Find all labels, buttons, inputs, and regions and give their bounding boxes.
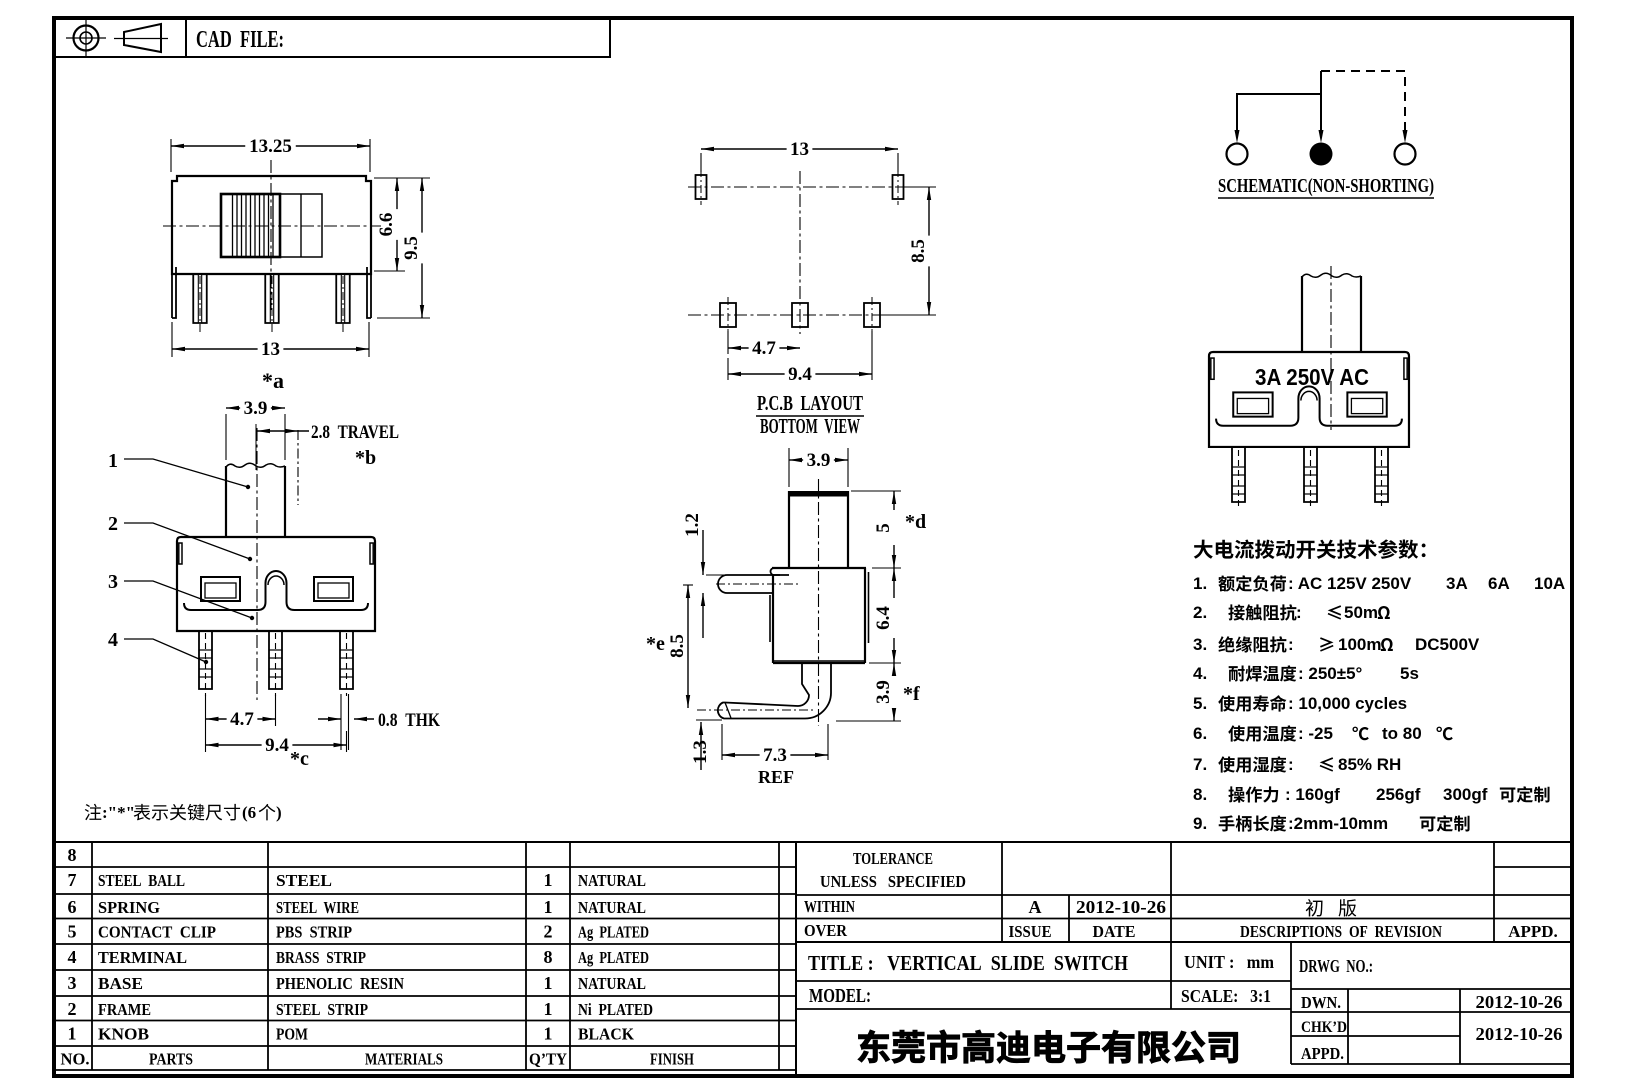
svg-text:1.3: 1.3: [690, 740, 711, 764]
svg-text:NATURAL: NATURAL: [578, 871, 646, 890]
svg-text:OVER: OVER: [804, 921, 848, 940]
svg-text:NATURAL: NATURAL: [578, 898, 646, 917]
svg-text:PHENOLIC RESIN: PHENOLIC RESIN: [276, 974, 405, 993]
svg-text:CONTACT CLIP: CONTACT CLIP: [98, 923, 216, 942]
svg-text:BOTTOM VIEW: BOTTOM VIEW: [760, 414, 860, 438]
svg-text:8.: 8.: [1193, 785, 1207, 804]
svg-text:2: 2: [544, 922, 553, 942]
svg-text:): ): [276, 803, 282, 822]
svg-text:to 80: to 80: [1382, 724, 1422, 743]
svg-text:1: 1: [108, 450, 118, 472]
svg-text:4.7: 4.7: [230, 709, 254, 730]
svg-text:CHK’D: CHK’D: [1301, 1019, 1347, 1036]
svg-text:: AC 125V 250V: : AC 125V 250V: [1288, 574, 1412, 593]
svg-text:STEEL: STEEL: [276, 871, 332, 890]
svg-text:MATERIALS: MATERIALS: [365, 1050, 443, 1069]
svg-text:*e: *e: [646, 633, 665, 655]
svg-text:9.4: 9.4: [265, 735, 289, 756]
svg-text:*a: *a: [262, 368, 284, 393]
svg-text:*b: *b: [355, 447, 376, 469]
svg-text:APPD.: APPD.: [1301, 1044, 1344, 1063]
svg-text:*c: *c: [290, 748, 309, 770]
svg-text::"*": :"*": [102, 803, 135, 822]
svg-text:100m: 100m: [1338, 635, 1381, 654]
svg-text:3: 3: [108, 571, 118, 593]
svg-text:FRAME: FRAME: [98, 1000, 151, 1019]
svg-text:PBS STRIP: PBS STRIP: [276, 923, 352, 942]
svg-text:NO.: NO.: [61, 1050, 90, 1069]
svg-text:13: 13: [790, 139, 809, 160]
svg-text:4.: 4.: [1193, 664, 1207, 683]
svg-text:2: 2: [68, 999, 77, 1019]
svg-text:256gf: 256gf: [1376, 785, 1421, 804]
svg-text:KNOB: KNOB: [98, 1025, 149, 1044]
svg-text:3.9: 3.9: [807, 450, 831, 471]
svg-text:Ni PLATED: Ni PLATED: [578, 1000, 653, 1019]
svg-text:13: 13: [261, 339, 280, 360]
svg-text:1: 1: [68, 1024, 77, 1044]
svg-text:SPRING: SPRING: [98, 898, 160, 917]
svg-text:3.9: 3.9: [873, 680, 894, 704]
svg-text:85% RH: 85% RH: [1338, 755, 1401, 774]
svg-text:2012-10-26: 2012-10-26: [1476, 992, 1563, 1012]
svg-text:9.: 9.: [1193, 814, 1207, 833]
svg-text:7: 7: [68, 870, 77, 890]
svg-text:STEEL STRIP: STEEL STRIP: [276, 1000, 368, 1019]
svg-text:MODEL:: MODEL:: [809, 985, 871, 1007]
svg-text:2012-10-26: 2012-10-26: [1076, 897, 1166, 917]
svg-text:1.2: 1.2: [682, 513, 703, 537]
svg-text:5: 5: [68, 922, 77, 942]
svg-text:5s: 5s: [1400, 664, 1419, 683]
svg-text:3A 250V AC: 3A 250V AC: [1255, 364, 1369, 390]
svg-text:Ag PLATED: Ag PLATED: [578, 923, 649, 942]
svg-text:6: 6: [68, 897, 77, 917]
svg-text:6.6: 6.6: [376, 213, 397, 237]
svg-text:APPD.: APPD.: [1508, 922, 1558, 941]
svg-text:: -25: : -25: [1298, 724, 1333, 743]
svg-text::: :: [1288, 635, 1294, 654]
svg-text:: 160gf: : 160gf: [1285, 785, 1340, 804]
svg-text:2.: 2.: [1193, 603, 1207, 622]
svg-text:REF: REF: [758, 767, 794, 787]
svg-text:9.4: 9.4: [788, 364, 812, 385]
svg-text:Q’TY: Q’TY: [529, 1050, 567, 1069]
svg-text:6.: 6.: [1193, 724, 1207, 743]
svg-text:SCALE: 3:1: SCALE: 3:1: [1181, 986, 1271, 1006]
svg-text:DATE: DATE: [1093, 922, 1136, 941]
svg-text:5.: 5.: [1193, 694, 1207, 713]
svg-text:8.5: 8.5: [908, 239, 929, 263]
svg-text::2mm-10mm: :2mm-10mm: [1288, 814, 1388, 833]
svg-text:7.: 7.: [1193, 755, 1207, 774]
svg-text:UNIT : mm: UNIT : mm: [1184, 952, 1274, 972]
svg-text:1: 1: [544, 999, 553, 1019]
svg-text:8: 8: [544, 947, 553, 967]
svg-text:300gf: 300gf: [1443, 785, 1488, 804]
svg-text:: 250±5°: : 250±5°: [1298, 664, 1363, 683]
svg-text:2012-10-26: 2012-10-26: [1476, 1024, 1563, 1044]
svg-text:ISSUE: ISSUE: [1009, 922, 1052, 941]
svg-text:9.5: 9.5: [401, 236, 422, 260]
svg-text:TOLERANCE: TOLERANCE: [853, 849, 933, 868]
svg-text:1.: 1.: [1193, 574, 1207, 593]
svg-text:3A: 3A: [1446, 574, 1468, 593]
svg-text:3.9: 3.9: [244, 398, 268, 419]
svg-text:POM: POM: [276, 1025, 308, 1044]
svg-text:5: 5: [873, 523, 894, 533]
svg-text:A: A: [1029, 897, 1042, 917]
svg-text:Ag PLATED: Ag PLATED: [578, 948, 649, 967]
svg-text:P.C.B LAYOUT: P.C.B LAYOUT: [757, 391, 863, 415]
svg-text:DRWG NO.:: DRWG NO.:: [1299, 956, 1373, 976]
svg-text:SCHEMATIC(NON-SHORTING): SCHEMATIC(NON-SHORTING): [1218, 175, 1434, 197]
svg-text:3.: 3.: [1193, 635, 1207, 654]
svg-text:*f: *f: [903, 683, 920, 705]
svg-text:STEEL BALL: STEEL BALL: [98, 871, 185, 890]
svg-text::: :: [1296, 603, 1302, 622]
svg-text:2.8 TRAVEL: 2.8 TRAVEL: [311, 422, 399, 443]
svg-text:*d: *d: [905, 511, 926, 533]
svg-text:DESCRIPTIONS OF REVISION: DESCRIPTIONS OF REVISION: [1240, 922, 1443, 941]
svg-text:FINISH: FINISH: [650, 1050, 694, 1069]
svg-text:8: 8: [68, 845, 77, 865]
svg-text:CAD FILE:: CAD FILE:: [196, 27, 284, 53]
svg-text:10A: 10A: [1534, 574, 1565, 593]
svg-text:1: 1: [544, 973, 553, 993]
svg-text:1: 1: [544, 870, 553, 890]
svg-text:: 10,000 cycles: : 10,000 cycles: [1288, 694, 1407, 713]
svg-text:BRASS STRIP: BRASS STRIP: [276, 948, 366, 967]
svg-text:1: 1: [544, 1024, 553, 1044]
svg-text:TERMINAL: TERMINAL: [98, 948, 187, 967]
svg-text:DC500V: DC500V: [1415, 635, 1480, 654]
svg-text:TITLE : VERTICAL SLIDE SWI: TITLE : VERTICAL SLIDE SWITCH: [808, 951, 1128, 975]
svg-text:PARTS: PARTS: [149, 1050, 193, 1069]
svg-text:6.4: 6.4: [873, 606, 894, 630]
svg-text:BLACK: BLACK: [578, 1025, 635, 1044]
svg-text:3: 3: [68, 973, 77, 993]
svg-text:4: 4: [108, 629, 118, 651]
svg-text:8.5: 8.5: [667, 634, 688, 658]
svg-text:4: 4: [68, 947, 77, 967]
svg-text:7.3: 7.3: [763, 745, 787, 766]
svg-text:2: 2: [108, 513, 118, 535]
svg-text:13.25: 13.25: [249, 136, 292, 157]
svg-text:BASE: BASE: [98, 974, 143, 993]
svg-text:6A: 6A: [1488, 574, 1510, 593]
svg-text::: :: [1288, 755, 1294, 774]
svg-text:1: 1: [544, 897, 553, 917]
svg-text:NATURAL: NATURAL: [578, 974, 646, 993]
svg-text:50m: 50m: [1344, 603, 1378, 622]
svg-text:(6: (6: [242, 803, 256, 822]
svg-text:0.8 THK: 0.8 THK: [378, 710, 440, 731]
svg-text:WITHIN: WITHIN: [804, 897, 856, 916]
svg-text:UNLESS SPECIFIED: UNLESS SPECIFIED: [820, 872, 966, 891]
svg-text:4.7: 4.7: [752, 338, 776, 359]
svg-text:STEEL WIRE: STEEL WIRE: [276, 898, 359, 917]
svg-text:DWN.: DWN.: [1301, 993, 1341, 1012]
